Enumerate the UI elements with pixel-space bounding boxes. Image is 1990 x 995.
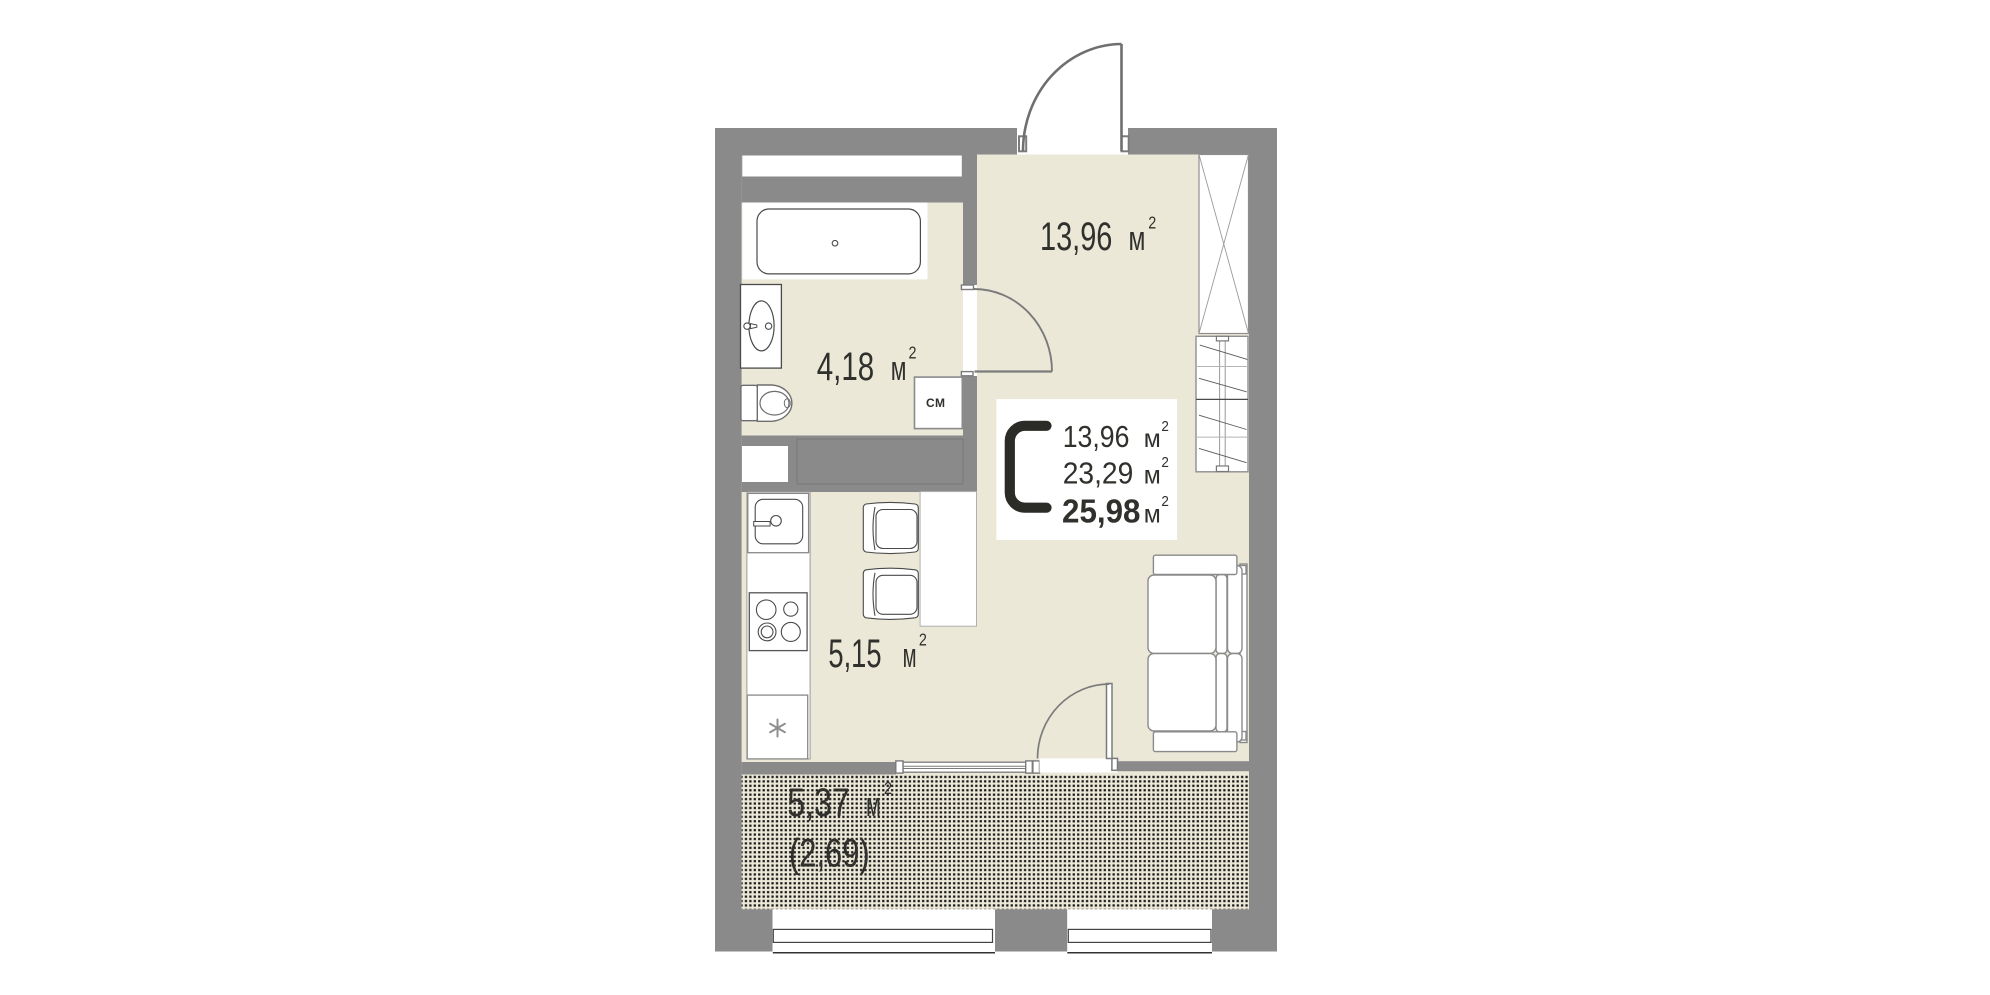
svg-text:5,15: 5,15 (828, 632, 881, 676)
svg-text:2: 2 (919, 630, 927, 650)
svg-text:2: 2 (1161, 418, 1169, 435)
svg-text:м: м (866, 786, 881, 824)
svg-text:13,96: 13,96 (1063, 420, 1130, 454)
svg-text:25,98: 25,98 (1062, 493, 1141, 530)
svg-text:м: м (891, 350, 907, 388)
svg-text:4,18: 4,18 (817, 345, 875, 389)
svg-text:СМ: СМ (926, 396, 946, 410)
svg-text:2: 2 (1161, 493, 1169, 510)
svg-text:м: м (1144, 423, 1161, 453)
svg-text:м: м (903, 637, 917, 675)
svg-text:м: м (1129, 220, 1146, 258)
svg-text:2: 2 (884, 778, 892, 798)
svg-text:м: м (1144, 459, 1161, 489)
svg-text:2: 2 (1148, 213, 1156, 233)
svg-text:(2,69): (2,69) (789, 832, 870, 876)
svg-text:13,96: 13,96 (1040, 215, 1112, 259)
svg-text:2: 2 (909, 343, 917, 363)
svg-text:м: м (1144, 499, 1161, 529)
svg-text:5,37: 5,37 (787, 781, 849, 825)
svg-text:2: 2 (1161, 454, 1169, 471)
svg-text:23,29: 23,29 (1063, 456, 1134, 490)
